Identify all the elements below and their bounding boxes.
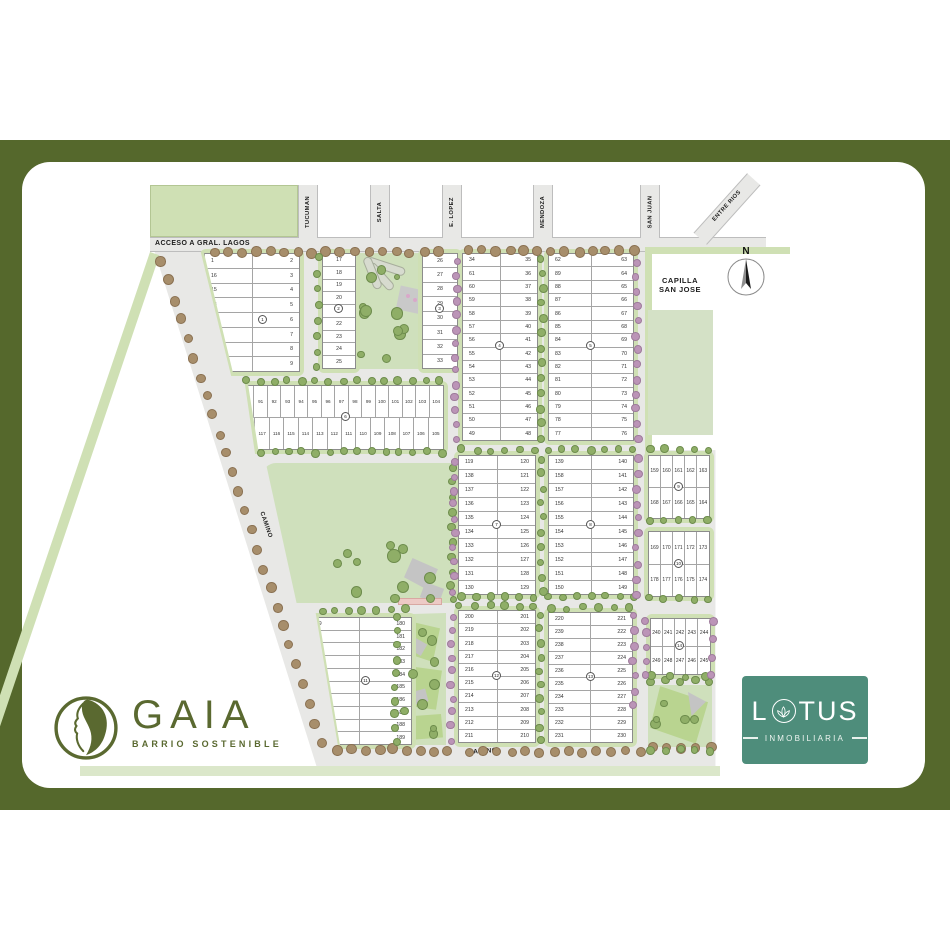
lot-247: 247 <box>675 647 687 674</box>
lot-137: 137 <box>459 484 497 498</box>
lot-157: 157 <box>549 484 591 498</box>
flyer-canvas: TUCUMAN SALTA E. LOPEZ MENDOZA SAN JUAN … <box>0 0 950 950</box>
lot-54: 54 <box>463 361 500 374</box>
lot-230: 230 <box>591 730 632 742</box>
lot-67: 67 <box>592 307 634 320</box>
tree-icon <box>297 447 305 455</box>
lot-41: 41 <box>501 334 538 347</box>
lot-241: 241 <box>663 619 675 646</box>
lot-121: 121 <box>498 470 536 484</box>
lot-49: 49 <box>463 428 500 440</box>
tree-icon <box>170 296 180 306</box>
lot-39: 39 <box>501 307 538 320</box>
tree-icon <box>601 446 608 453</box>
lot-211: 211 <box>459 730 497 742</box>
tree-icon <box>298 679 308 689</box>
lot-201: 201 <box>498 611 536 624</box>
tree-icon <box>536 405 544 413</box>
tree-icon <box>516 446 524 454</box>
lot-149: 149 <box>592 581 634 594</box>
tree-icon <box>372 606 380 614</box>
lot-233: 233 <box>549 704 590 717</box>
lotus-letter-l: L <box>751 698 768 725</box>
lot-238: 238 <box>549 639 590 652</box>
tree-icon <box>537 543 545 551</box>
tree-icon <box>400 707 408 715</box>
tree-icon <box>537 389 544 396</box>
tree-icon <box>535 668 543 676</box>
tree-icon <box>547 604 556 613</box>
tree-icon <box>515 593 523 601</box>
compass-n-label: N <box>726 246 766 257</box>
lot-132: 132 <box>459 553 497 567</box>
lot-36: 36 <box>501 267 538 280</box>
tree-icon <box>535 694 544 703</box>
tree-icon <box>478 746 487 755</box>
tree-icon <box>453 297 461 305</box>
lot-125: 125 <box>498 526 536 540</box>
lot-101: 101 <box>389 386 402 417</box>
tree-icon <box>452 381 461 390</box>
lot-122: 122 <box>498 484 536 498</box>
tree-icon <box>487 601 494 608</box>
tree-icon <box>285 448 292 455</box>
tree-icon <box>634 345 643 354</box>
tree-icon <box>601 592 609 600</box>
lot-135: 135 <box>459 512 497 526</box>
lot-140: 140 <box>592 456 634 470</box>
gaia-face-icon <box>52 694 120 762</box>
tree-icon <box>430 657 440 667</box>
divider-line <box>852 737 867 738</box>
tree-icon <box>450 696 457 703</box>
street-sanjuan-label: SAN JUAN <box>647 195 653 228</box>
lot-168: 168 <box>649 488 661 519</box>
tree-icon <box>537 681 545 689</box>
tree-icon <box>587 446 596 455</box>
tree-icon <box>365 247 374 256</box>
lot-164: 164 <box>697 488 709 519</box>
left-boundary-strip <box>0 252 159 752</box>
lot-37: 37 <box>501 281 538 294</box>
lot-83: 83 <box>549 348 591 361</box>
tree-icon <box>448 666 456 674</box>
tree-icon <box>464 245 473 254</box>
lot-47: 47 <box>501 414 538 427</box>
tree-icon <box>315 301 322 308</box>
tree-icon <box>383 448 390 455</box>
tree-icon <box>279 248 288 257</box>
tree-icon <box>319 608 327 616</box>
tree-icon <box>423 447 431 455</box>
tree-icon <box>378 247 387 256</box>
lot-119: 119 <box>459 456 497 470</box>
lot-66: 66 <box>592 294 634 307</box>
lot-93: 93 <box>281 386 294 417</box>
tree-icon <box>252 545 262 555</box>
lot-45: 45 <box>501 388 538 401</box>
lot-55: 55 <box>463 348 500 361</box>
tree-icon <box>283 376 290 383</box>
tree-icon <box>529 603 537 611</box>
lotus-logo: L TUS INMOBILIARIA <box>742 676 868 764</box>
tree-icon <box>221 448 231 458</box>
tree-icon <box>564 746 574 756</box>
lot-237: 237 <box>549 652 590 665</box>
block-badge-2: 2 <box>334 304 343 313</box>
lot-246: 246 <box>686 647 698 674</box>
lot-3: 3 <box>253 269 300 284</box>
tree-icon <box>691 676 700 685</box>
tree-icon <box>327 449 334 456</box>
tree-icon <box>401 604 410 613</box>
tree-icon <box>606 747 616 757</box>
lot-124: 124 <box>498 512 536 526</box>
lot-207: 207 <box>498 690 536 703</box>
tree-icon <box>393 376 402 385</box>
tree-icon <box>176 313 187 324</box>
lot-91: 91 <box>254 386 267 417</box>
tree-icon <box>642 671 650 679</box>
tree-icon <box>345 607 353 615</box>
lot-127: 127 <box>498 553 536 567</box>
lot-150: 150 <box>549 581 591 594</box>
lot-153: 153 <box>549 539 591 553</box>
lot-123: 123 <box>498 498 536 512</box>
tree-icon <box>451 354 458 361</box>
tree-icon <box>634 529 643 538</box>
street-salta: SALTA <box>370 185 390 238</box>
tree-icon <box>387 549 401 563</box>
lot-144: 144 <box>592 512 634 526</box>
lot-222: 222 <box>591 626 632 639</box>
lot-96: 96 <box>322 386 335 417</box>
tree-icon <box>645 594 652 601</box>
lot-48: 48 <box>501 428 538 440</box>
block-badge-9: 9 <box>674 482 683 491</box>
lot-109: 109 <box>371 418 385 449</box>
tree-icon <box>427 635 437 645</box>
tree-icon <box>418 628 427 637</box>
lot-136: 136 <box>459 498 497 512</box>
lot-115: 115 <box>284 418 298 449</box>
block-badge-13: 13 <box>586 672 595 681</box>
block-badge-5: 5 <box>586 341 595 350</box>
lot-249: 249 <box>651 647 663 674</box>
lot-19: 19 <box>323 280 355 293</box>
tree-icon <box>508 748 517 757</box>
tree-icon <box>251 246 262 257</box>
lot-69: 69 <box>592 334 634 347</box>
tree-icon <box>433 246 444 257</box>
tree-icon <box>450 487 458 495</box>
tree-icon <box>653 716 660 723</box>
lot-163: 163 <box>697 456 709 487</box>
tree-icon <box>155 256 165 266</box>
lot-175: 175 <box>685 565 697 597</box>
capilla-line1: CAPILLA <box>648 276 712 285</box>
tree-icon <box>340 378 348 386</box>
tree-icon <box>540 486 547 493</box>
tree-icon <box>632 485 641 494</box>
tree-icon <box>240 506 249 515</box>
lot-216: 216 <box>459 664 497 677</box>
tree-icon <box>404 249 413 258</box>
tree-icon <box>539 314 548 323</box>
tree-icon <box>442 746 452 756</box>
lot-209: 209 <box>498 717 536 730</box>
lot-110: 110 <box>356 418 370 449</box>
gaia-tagline: BARRIO SOSTENIBLE <box>132 739 282 749</box>
lot-221: 221 <box>591 613 632 626</box>
tree-icon <box>333 559 342 568</box>
street-sanjuan: SAN JUAN <box>640 185 660 238</box>
lot-59: 59 <box>463 294 500 307</box>
tree-icon <box>634 435 643 444</box>
tree-icon <box>429 679 440 690</box>
tree-icon <box>660 444 669 453</box>
lot-100: 100 <box>376 386 389 417</box>
tree-icon <box>635 514 642 521</box>
lot-174: 174 <box>697 565 709 597</box>
tree-icon <box>457 444 466 453</box>
tree-icon <box>449 499 457 507</box>
tree-icon <box>706 747 714 755</box>
lot-71: 71 <box>592 361 634 374</box>
lot-57: 57 <box>463 321 500 334</box>
lot-151: 151 <box>549 567 591 581</box>
lot-77: 77 <box>549 428 591 440</box>
lot-177: 177 <box>661 565 673 597</box>
tree-icon <box>680 715 689 724</box>
tree-icon <box>343 549 352 558</box>
tree-icon <box>311 449 320 458</box>
lot-126: 126 <box>498 539 536 553</box>
tree-icon <box>305 699 315 709</box>
street-tucuman: TUCUMAN <box>298 185 318 238</box>
tree-icon <box>518 245 529 256</box>
tree-icon <box>430 725 437 732</box>
tree-icon <box>632 391 640 399</box>
lot-138: 138 <box>459 470 497 484</box>
playground-marker-icon <box>406 294 410 298</box>
gaia-name: GAIA <box>132 694 282 736</box>
street-tucuman-label: TUCUMAN <box>305 195 311 227</box>
tree-icon <box>394 274 400 280</box>
lot-220: 220 <box>549 613 590 626</box>
lot-94: 94 <box>295 386 308 417</box>
lot-79: 79 <box>549 401 591 414</box>
block-badge-10: 10 <box>674 559 683 568</box>
tree-icon <box>382 354 391 363</box>
tree-icon <box>538 456 545 463</box>
tree-icon <box>392 247 402 257</box>
lot-243: 243 <box>686 619 698 646</box>
tree-icon <box>266 246 276 256</box>
lot-24: 24 <box>323 343 355 356</box>
lotus-name: L TUS <box>751 698 858 725</box>
lot-68: 68 <box>592 321 634 334</box>
tree-icon <box>675 594 683 602</box>
lot-107: 107 <box>400 418 414 449</box>
tree-icon <box>621 746 630 755</box>
lot-9: 9 <box>253 357 300 371</box>
tree-icon <box>457 592 466 601</box>
street-lopez: E. LOPEZ <box>442 185 462 238</box>
lot-228: 228 <box>591 704 632 717</box>
tree-icon <box>210 248 219 257</box>
tree-icon <box>500 601 509 610</box>
lot-215: 215 <box>459 677 497 690</box>
lot-141: 141 <box>592 470 634 484</box>
tree-icon <box>617 593 624 600</box>
lot-62: 62 <box>549 254 591 267</box>
lot-76: 76 <box>592 428 634 440</box>
tree-icon <box>709 617 718 626</box>
tree-icon <box>397 581 409 593</box>
lot-214: 214 <box>459 690 497 703</box>
tree-icon <box>631 404 640 413</box>
south-green-band <box>80 766 720 776</box>
tree-icon <box>451 474 458 481</box>
lot-134: 134 <box>459 526 497 540</box>
compass-rose-icon <box>726 257 766 297</box>
lot-42: 42 <box>501 348 538 361</box>
lot-84: 84 <box>549 334 591 347</box>
lot-75: 75 <box>592 414 634 427</box>
tree-icon <box>625 603 633 611</box>
lot-240: 240 <box>651 619 663 646</box>
street-entrerios-label: ENTRE RIOS <box>705 182 750 231</box>
lot-7: 7 <box>253 328 300 343</box>
block-badge-12: 12 <box>492 671 501 680</box>
tree-icon <box>334 247 344 257</box>
tree-icon <box>447 640 455 648</box>
tree-icon <box>615 445 623 453</box>
tree-icon <box>708 654 716 662</box>
tree-icon <box>368 377 376 385</box>
street-mendoza: MENDOZA <box>533 185 553 238</box>
tree-icon <box>634 561 642 569</box>
tree-icon <box>294 247 303 256</box>
block-badge-7: 7 <box>492 520 501 529</box>
tree-icon <box>633 360 640 367</box>
lot-143: 143 <box>592 498 634 512</box>
lot-223: 223 <box>591 639 632 652</box>
block-badge-3: 3 <box>435 304 444 313</box>
tree-icon <box>332 745 343 756</box>
lot-229: 229 <box>591 717 632 730</box>
tree-icon <box>646 517 654 525</box>
block-badge-6: 6 <box>341 412 350 421</box>
gaia-logo: GAIA BARRIO SOSTENIBLE <box>52 694 282 762</box>
lot-25: 25 <box>323 356 355 368</box>
tree-icon <box>501 447 508 454</box>
tree-icon <box>575 247 586 258</box>
lot-52: 52 <box>463 388 500 401</box>
tree-icon <box>611 604 618 611</box>
tree-icon <box>451 529 460 538</box>
tree-icon <box>537 255 545 263</box>
tree-icon <box>426 594 435 603</box>
tree-icon <box>438 449 447 458</box>
tree-icon <box>579 603 587 611</box>
tree-icon <box>531 447 538 454</box>
lot-205: 205 <box>498 664 536 677</box>
tree-icon <box>630 626 639 635</box>
lot-170: 170 <box>661 532 673 564</box>
tree-icon <box>662 747 670 755</box>
tree-icon <box>257 449 265 457</box>
tree-icon <box>420 247 429 256</box>
lot-102: 102 <box>403 386 416 417</box>
lot-148: 148 <box>592 567 634 581</box>
lot-50: 50 <box>463 414 500 427</box>
tree-icon <box>408 669 418 679</box>
lot-99: 99 <box>362 386 375 417</box>
tree-icon <box>346 744 356 754</box>
tree-icon <box>537 639 546 648</box>
tree-icon <box>453 436 460 443</box>
lot-111: 111 <box>342 418 356 449</box>
lot-120: 120 <box>498 456 536 470</box>
tree-icon <box>309 719 319 729</box>
block-badge-14: 14 <box>675 641 684 650</box>
lot-178: 178 <box>649 565 661 597</box>
tree-icon <box>594 603 603 612</box>
tree-icon <box>501 592 510 601</box>
north-green-parcel <box>150 185 298 237</box>
tree-icon <box>448 738 455 745</box>
lot-113: 113 <box>313 418 327 449</box>
lot-239: 239 <box>549 626 590 639</box>
lot-8: 8 <box>253 343 300 358</box>
lot-4: 4 <box>253 284 300 299</box>
lot-226: 226 <box>591 678 632 691</box>
tree-icon <box>634 470 643 479</box>
lot-224: 224 <box>591 652 632 665</box>
site-map: TUCUMAN SALTA E. LOPEZ MENDOZA SAN JUAN … <box>0 0 950 950</box>
lot-166: 166 <box>673 488 685 519</box>
lot-61: 61 <box>463 267 500 280</box>
tree-icon <box>298 377 307 386</box>
lot-60: 60 <box>463 281 500 294</box>
tree-icon <box>393 326 403 336</box>
lot-188: 188 <box>360 720 412 733</box>
lot-103: 103 <box>416 386 429 417</box>
lot-225: 225 <box>591 665 632 678</box>
lot-70: 70 <box>592 348 634 361</box>
lot-5: 5 <box>253 298 300 313</box>
tree-icon <box>642 628 651 637</box>
tree-icon <box>558 445 566 453</box>
tree-icon <box>228 467 238 477</box>
tree-icon <box>709 635 717 643</box>
tree-icon <box>703 516 711 524</box>
street-lopez-label: E. LOPEZ <box>449 197 455 227</box>
lot-186: 186 <box>360 694 412 707</box>
tree-icon <box>563 606 570 613</box>
lot-82: 82 <box>549 361 591 374</box>
tree-icon <box>630 612 637 619</box>
tree-icon <box>629 245 640 256</box>
lot-232: 232 <box>549 717 590 730</box>
tree-icon <box>636 747 646 757</box>
lot-112: 112 <box>328 418 342 449</box>
playground-marker-icon <box>413 298 417 302</box>
tree-icon <box>273 603 283 613</box>
lot-159: 159 <box>649 456 661 487</box>
